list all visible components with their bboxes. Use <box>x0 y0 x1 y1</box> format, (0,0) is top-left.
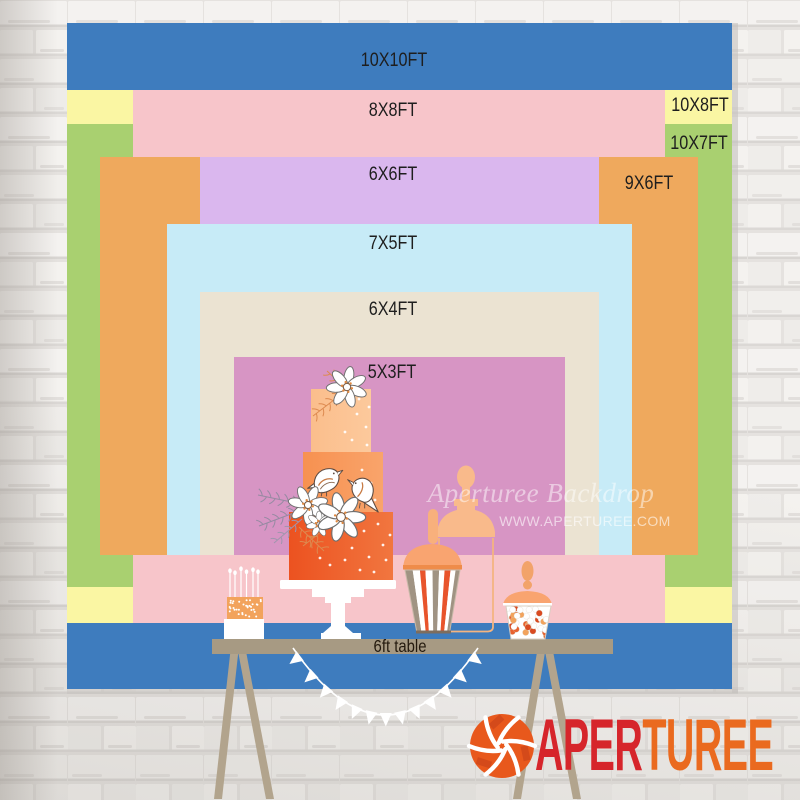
svg-text:Aperturee Backdrop: Aperturee Backdrop <box>426 478 655 508</box>
svg-text:6ft table: 6ft table <box>374 637 427 656</box>
svg-text:WWW.APERTUREE.COM: WWW.APERTUREE.COM <box>499 513 670 529</box>
svg-text:APERTUREE: APERTUREE <box>535 705 773 786</box>
